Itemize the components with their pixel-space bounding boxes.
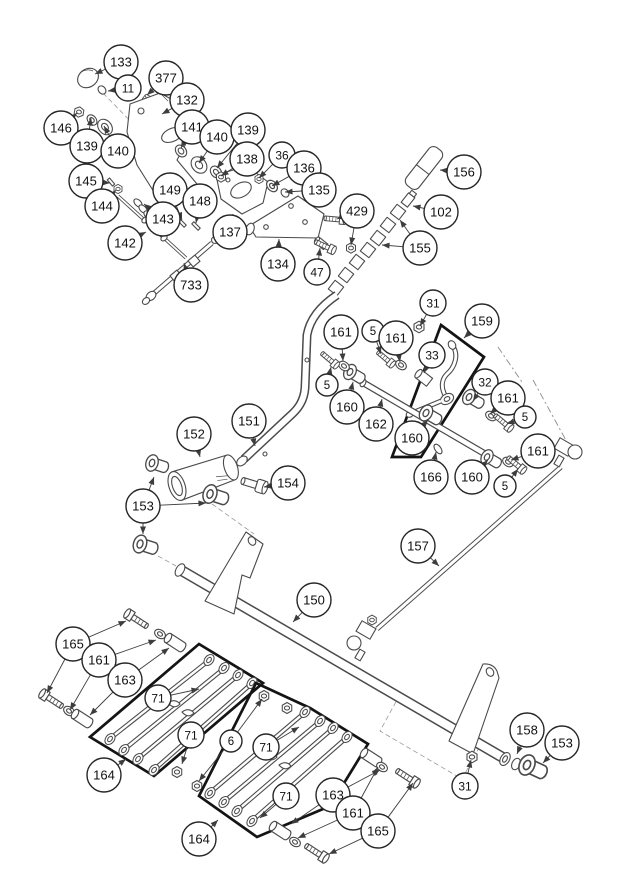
leader-line-161 (342, 349, 343, 361)
callout-balloon-163-56: 163 (108, 663, 142, 697)
callout-number: 429 (346, 204, 368, 219)
washer-140-b (188, 154, 210, 177)
bushing-153-a (144, 453, 171, 476)
callout-number: 5 (522, 412, 528, 424)
leader-line-162 (380, 399, 382, 408)
callout-number: 102 (430, 205, 452, 220)
callout-balloon-165-65: 165 (361, 814, 395, 848)
leader-line-47 (319, 248, 320, 259)
leader-line-161 (70, 675, 91, 710)
callout-number: 165 (62, 637, 84, 652)
callout-number: 11 (122, 81, 135, 95)
callout-number: 144 (91, 199, 113, 214)
pin-148 (192, 222, 200, 230)
callout-number: 139 (76, 139, 98, 154)
callout-balloon-31-28: 31 (420, 290, 446, 316)
callout-number: 5 (324, 380, 330, 392)
callout-balloon-5-40: 5 (514, 406, 536, 428)
ball-joint-bottom (347, 615, 376, 661)
leader-line-153 (160, 503, 206, 505)
callout-balloon-135-13: 135 (302, 173, 336, 207)
callout-number: 161 (385, 331, 407, 346)
callout-balloon-11-2: 11 (115, 75, 141, 101)
leader-line-163 (139, 648, 169, 670)
leader-line-150 (293, 612, 302, 622)
callout-balloon-6-60: 6 (220, 730, 242, 752)
callout-balloon-143-19: 143 (146, 202, 180, 236)
callout-number: 31 (458, 779, 472, 793)
callout-number: 133 (110, 55, 132, 70)
callout-number: 149 (159, 183, 181, 198)
callout-number: 143 (152, 212, 174, 227)
callout-balloon-137-21: 137 (213, 215, 247, 249)
callout-balloon-71-57: 71 (145, 685, 171, 711)
bolt-154 (239, 474, 269, 494)
callout-number: 136 (293, 161, 315, 176)
callout-number: 153 (132, 499, 154, 514)
leader-line-163 (90, 692, 113, 715)
nut-144 (114, 184, 122, 193)
callout-balloon-133-0: 133 (104, 45, 138, 79)
ring-135 (279, 187, 290, 198)
leader-line-145 (103, 182, 110, 183)
leader-line-377 (147, 89, 153, 95)
callout-number: 160 (461, 470, 483, 485)
callout-number: 161 (342, 806, 364, 821)
callout-balloon-5-44: 5 (494, 475, 516, 497)
leader-line-160 (351, 382, 353, 391)
callout-balloon-142-20: 142 (108, 226, 142, 260)
leader-line-148 (196, 218, 197, 223)
fitting-102 (401, 190, 417, 208)
bolt-165-b1 (394, 766, 422, 789)
callout-number: 135 (308, 183, 330, 198)
callout-number: 33 (425, 348, 439, 362)
callout-balloon-161-29: 161 (324, 315, 358, 349)
callout-number: 145 (75, 174, 97, 189)
callout-balloon-150-49: 150 (297, 583, 331, 617)
callout-number: 162 (365, 417, 387, 432)
callout-number: 140 (107, 144, 129, 159)
nut-6-d (192, 780, 202, 791)
callout-balloon-152-45: 152 (177, 417, 211, 451)
callout-number: 154 (277, 476, 299, 491)
callout-number: 164 (93, 768, 115, 783)
leader-line-159 (464, 333, 470, 338)
pin-145 (107, 178, 114, 186)
leader-line-31 (468, 760, 471, 773)
callout-balloon-164-59: 164 (87, 758, 121, 792)
callout-number: 134 (267, 257, 289, 272)
leader-line-156 (440, 170, 447, 171)
callout-number: 36 (275, 148, 289, 162)
callout-balloon-148-18: 148 (183, 184, 217, 218)
clip-166 (432, 443, 443, 455)
leader-line-166 (434, 452, 436, 460)
callout-number: 47 (310, 265, 324, 279)
leader-line-165 (329, 838, 363, 854)
callout-balloon-153-52: 153 (545, 726, 579, 760)
callout-number: 71 (279, 789, 293, 803)
callout-balloon-160-37: 160 (395, 421, 429, 455)
washer-139-a (85, 113, 99, 127)
callout-number: 153 (551, 736, 573, 751)
nut-146 (74, 106, 85, 118)
callout-number: 152 (183, 427, 205, 442)
leader-line-153 (543, 755, 550, 763)
leader-line-136 (272, 176, 289, 186)
leader-line-155 (400, 220, 410, 234)
callout-number: 71 (151, 691, 165, 705)
bolt-165-a2 (37, 688, 65, 711)
callout-number: 733 (180, 278, 202, 293)
exploded-diagram: 1333771113214613914014114013913836136135… (0, 0, 620, 876)
leader-line-5 (329, 367, 331, 374)
callout-number: 164 (188, 832, 210, 847)
callout-number: 5 (370, 326, 376, 338)
callout-number: 377 (155, 71, 177, 86)
bolt-165-a1 (122, 608, 150, 631)
callout-balloon-140-6: 140 (101, 134, 135, 168)
callout-number: 5 (502, 481, 508, 493)
callout-number: 156 (453, 165, 475, 180)
callout-balloon-71-58: 71 (178, 722, 204, 748)
callout-number: 161 (497, 391, 519, 406)
callout-balloon-31-53: 31 (452, 773, 478, 799)
callout-number: 71 (184, 728, 198, 742)
washer-161-b (394, 358, 408, 372)
leader-line-161 (115, 640, 156, 654)
leader-line-102 (413, 206, 424, 208)
callout-balloon-160-42: 160 (455, 460, 489, 494)
callout-balloon-144-16: 144 (85, 189, 119, 223)
callout-number: 31 (426, 296, 440, 310)
callout-balloon-166-41: 166 (414, 460, 448, 494)
callout-balloon-159-32: 159 (465, 304, 499, 338)
callout-number: 140 (206, 130, 228, 145)
washer-11 (96, 84, 107, 95)
callout-number: 71 (259, 740, 273, 754)
callout-balloon-161-31: 161 (379, 321, 413, 355)
nut-6-a (259, 690, 269, 701)
callout-number: 165 (367, 824, 389, 839)
nut-6-b (282, 702, 292, 713)
leader-line-161 (298, 820, 338, 838)
callout-number: 161 (527, 444, 549, 459)
callout-number: 161 (330, 325, 352, 340)
leader-line-155 (382, 245, 403, 247)
leader-line-161 (361, 767, 378, 798)
leader-line-152 (198, 450, 200, 457)
callout-number: 155 (409, 241, 431, 256)
leader-line-157 (430, 558, 439, 566)
callout-balloon-155-27: 155 (403, 231, 437, 265)
callout-number: 139 (237, 123, 259, 138)
knob-156 (403, 144, 445, 192)
leader-line-158 (517, 746, 521, 754)
callout-number: 159 (471, 314, 493, 329)
leader-line-165 (47, 659, 65, 693)
callout-balloon-733-22: 733 (174, 268, 208, 302)
sleeve-33 (413, 368, 432, 386)
callout-number: 148 (189, 194, 211, 209)
callout-balloon-156-25: 156 (447, 155, 481, 189)
callout-number: 158 (516, 723, 538, 738)
callout-number: 141 (181, 120, 203, 135)
callout-balloon-33-33: 33 (419, 342, 445, 368)
leader-line-5 (512, 469, 518, 477)
nut-6-c (172, 766, 182, 777)
leader-line-6 (199, 750, 224, 781)
callout-number: 166 (420, 470, 442, 485)
callout-number: 6 (228, 736, 234, 748)
nut-138 (217, 172, 226, 182)
callout-balloon-151-46: 151 (232, 404, 266, 438)
bushing-153-c (131, 533, 160, 558)
bushing-153-d (516, 752, 551, 783)
callout-number: 132 (176, 93, 198, 108)
callout-balloon-138-10: 138 (230, 142, 264, 176)
callout-number: 142 (114, 236, 136, 251)
callout-number: 137 (219, 225, 241, 240)
nut-31-b (467, 751, 477, 763)
leader-line-165 (89, 621, 126, 637)
callout-balloon-164-66: 164 (182, 822, 216, 856)
callout-balloon-5-34: 5 (316, 374, 338, 396)
callout-balloon-140-8: 140 (200, 120, 234, 154)
callout-balloon-160-35: 160 (330, 390, 364, 424)
callout-number: 160 (401, 431, 423, 446)
callout-number: 138 (236, 152, 258, 167)
callout-number: 157 (407, 539, 429, 554)
callout-balloon-158-51: 158 (510, 713, 544, 747)
leader-line-142 (140, 232, 146, 235)
callout-number: 160 (336, 400, 358, 415)
callout-balloon-149-17: 149 (153, 173, 187, 207)
callout-balloon-154-47: 154 (271, 466, 305, 500)
callout-number: 150 (303, 593, 325, 608)
callout-number: 32 (478, 375, 492, 389)
leader-line-11 (108, 90, 115, 91)
callout-number: 161 (88, 653, 110, 668)
callout-number: 146 (50, 121, 72, 136)
spacer-163-a2 (70, 708, 95, 729)
leader-line-164 (118, 759, 126, 765)
callout-number: 151 (238, 414, 260, 429)
callout-balloon-71-62: 71 (273, 783, 299, 809)
callout-balloon-47-24: 47 (304, 259, 330, 285)
callout-number: 163 (114, 673, 136, 688)
nut-31-a (414, 321, 424, 333)
callout-balloon-157-50: 157 (401, 529, 435, 563)
bolt-47b (313, 237, 338, 255)
leader-line-163 (291, 805, 319, 824)
callout-balloon-429-14: 429 (340, 194, 374, 228)
leader-line-165 (388, 783, 413, 817)
bolt-5-a (319, 350, 341, 370)
ball-joint-top (554, 438, 582, 467)
parts-diagram-page: 1333771113214613914014114013913836136135… (0, 0, 620, 876)
right-arm (449, 664, 499, 754)
callout-balloon-161-43: 161 (521, 434, 555, 468)
leader-line-429 (351, 228, 354, 245)
callout-layer: 1333771113214613914014114013913836136135… (44, 45, 579, 856)
leader-line-153 (149, 477, 154, 490)
callout-balloon-134-23: 134 (261, 247, 295, 281)
leader-line-6 (238, 699, 263, 732)
bolt-165-b2 (303, 841, 331, 864)
callout-balloon-162-36: 162 (359, 407, 393, 441)
callout-balloon-102-26: 102 (424, 195, 458, 229)
callout-balloon-71-61: 71 (253, 734, 279, 760)
callout-balloon-153-48: 153 (126, 489, 160, 523)
leader-line-164 (211, 820, 218, 827)
callout-balloon-139-5: 139 (70, 129, 104, 163)
